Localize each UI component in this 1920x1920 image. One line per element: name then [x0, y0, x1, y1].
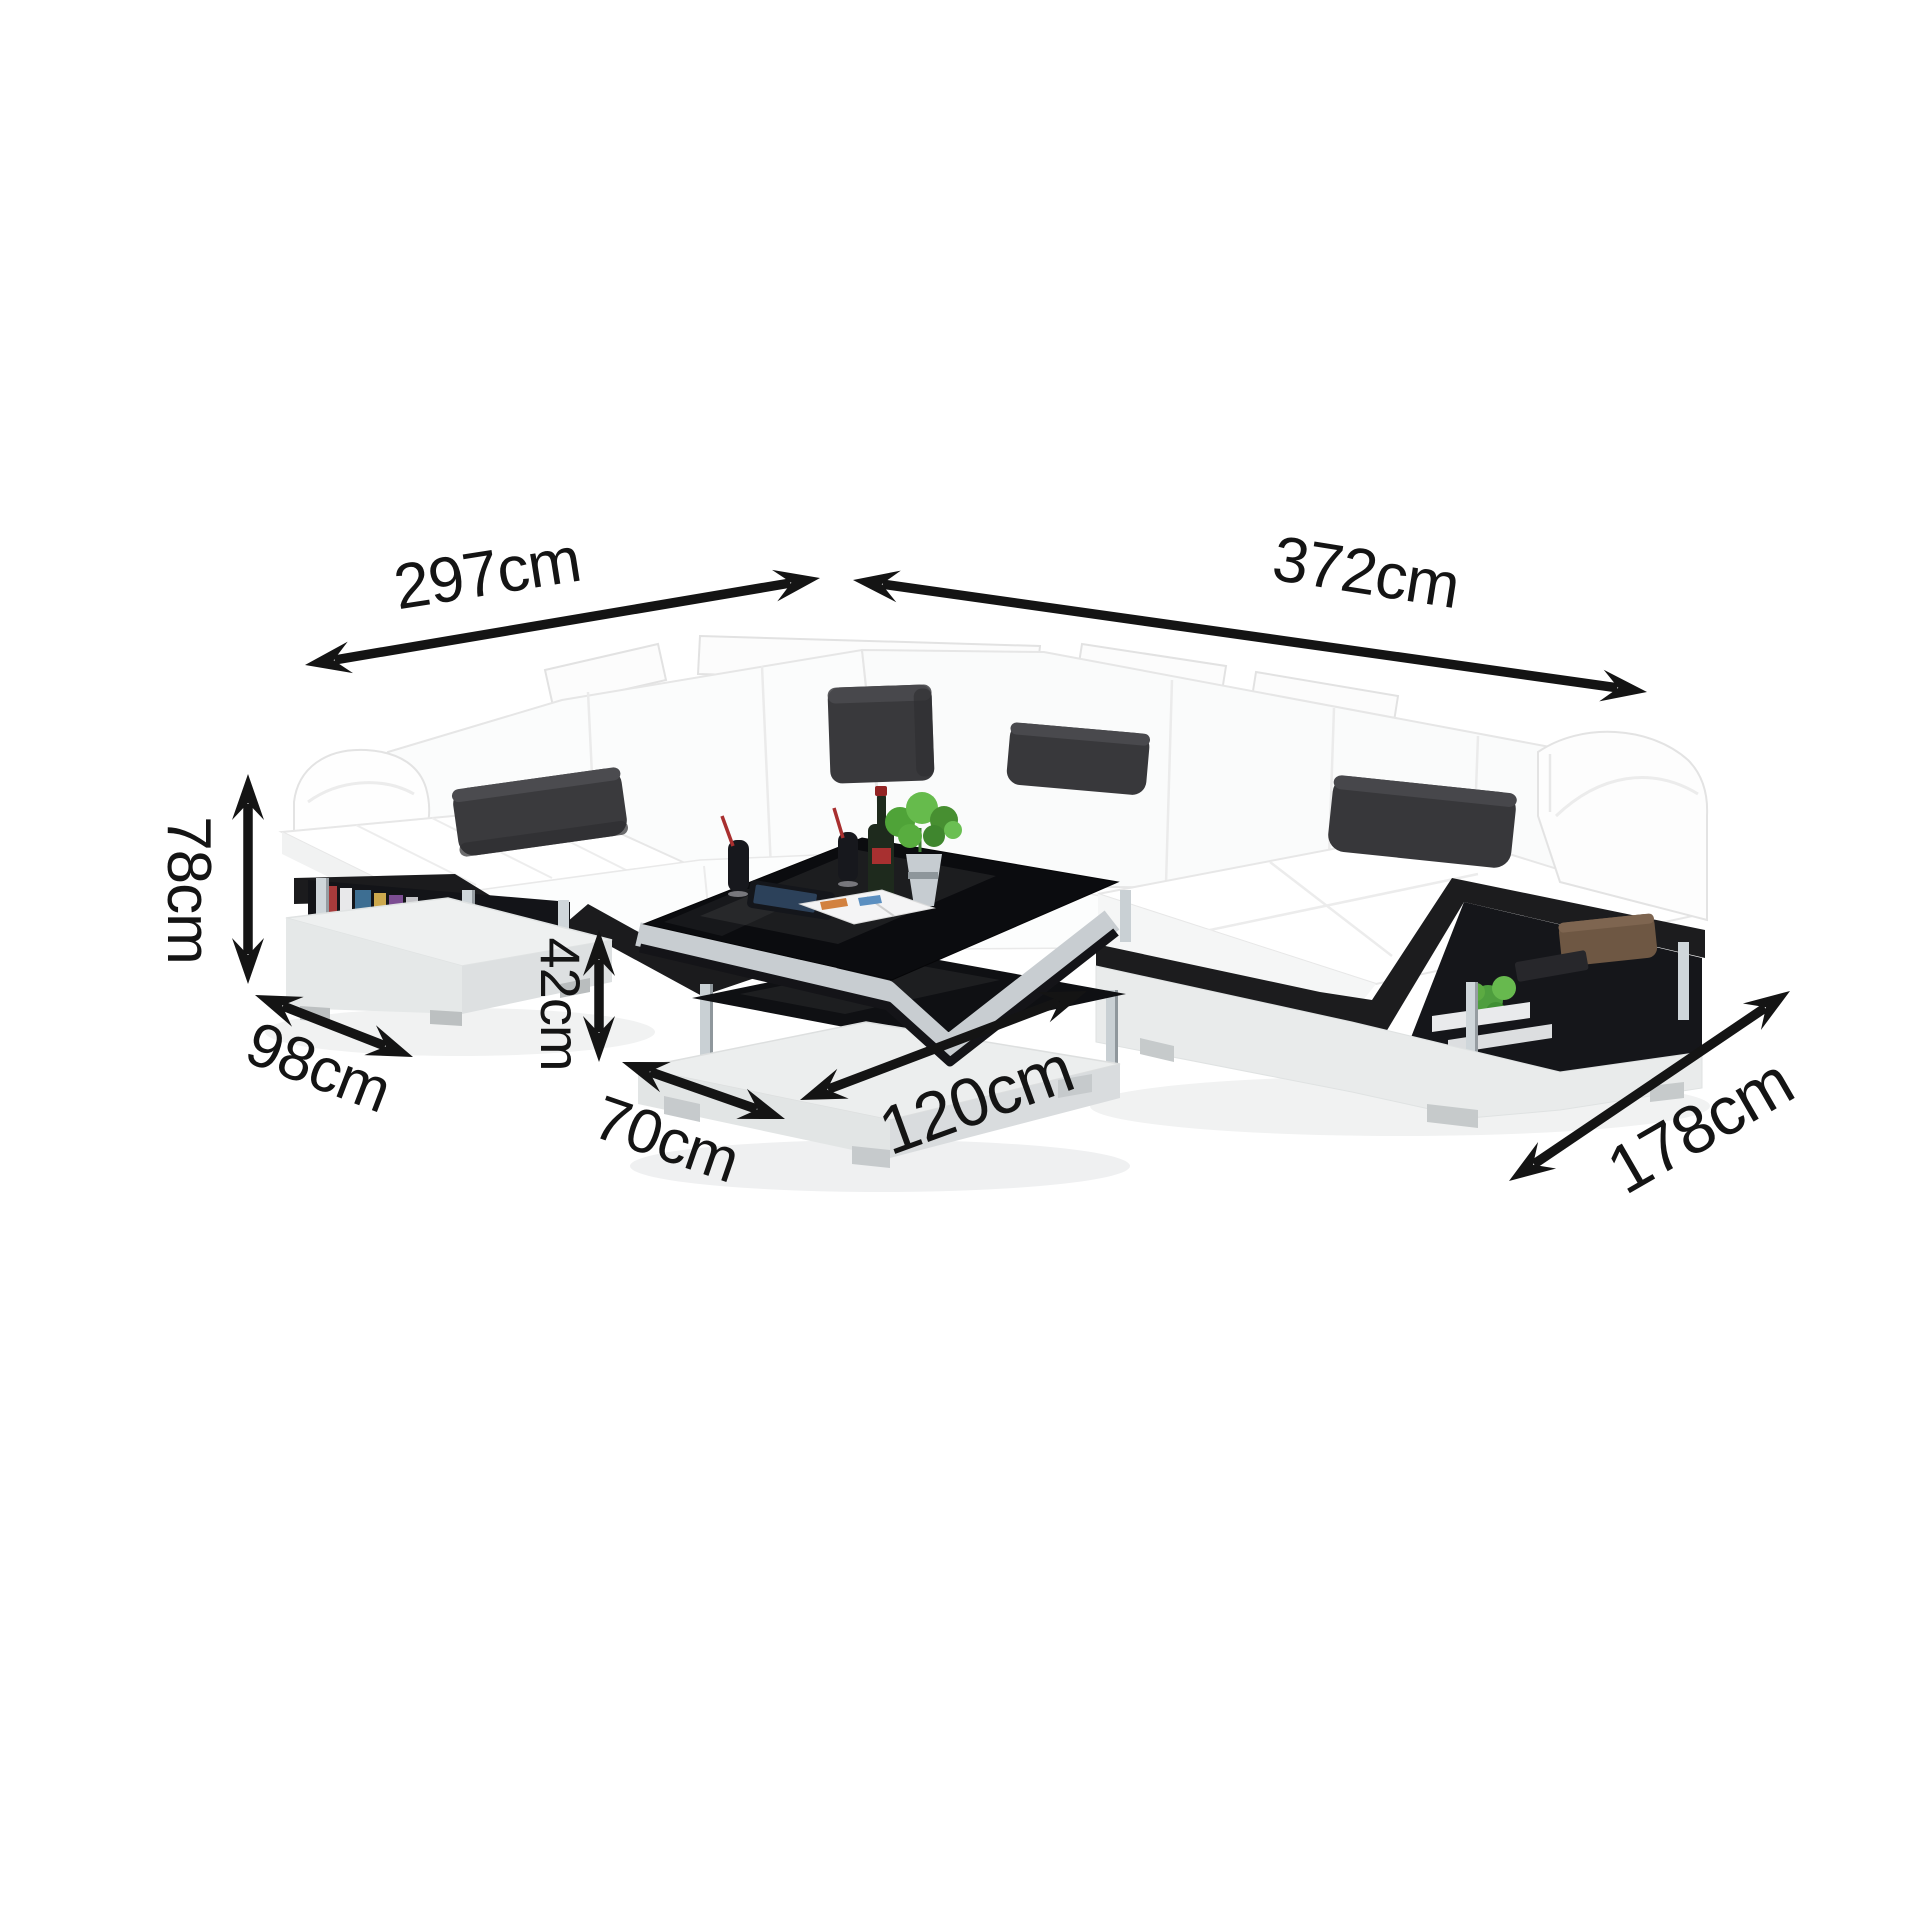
- chrome-pillar: [1678, 942, 1689, 1020]
- plant-leaf: [1492, 976, 1516, 1000]
- pillow-shade: [913, 688, 934, 777]
- bottle-label: [872, 848, 891, 864]
- plant-leaf: [898, 824, 922, 848]
- dimension-arrowhead: [1743, 991, 1790, 1030]
- lumbar-pillow-mid: [1006, 722, 1151, 796]
- table-leg: [1120, 890, 1131, 942]
- plant-leaf: [923, 825, 945, 847]
- dim-label-table-height: 42cm: [532, 938, 588, 1071]
- corner-pillow: [827, 684, 934, 784]
- cocktail-glass: [728, 840, 749, 892]
- chrome-edge: [1475, 982, 1478, 1054]
- vase-band: [908, 872, 938, 879]
- sofa-scene: [0, 0, 1920, 1920]
- leg-edge: [1115, 990, 1118, 1072]
- dimension-arrowhead: [1509, 1142, 1556, 1181]
- dim-label-backrest-height: 78cm: [157, 816, 219, 964]
- sofa-dimension-diagram: 297cm 372cm 78cm 98cm 42cm 70cm 120cm 17…: [0, 0, 1920, 1920]
- bottle-cap: [875, 786, 887, 796]
- cocktail-glass: [838, 832, 858, 882]
- bottle-neck: [877, 794, 886, 828]
- glass-base: [728, 891, 748, 897]
- plant-leaf: [944, 821, 962, 839]
- foot: [430, 1010, 462, 1026]
- glass-base: [838, 881, 858, 887]
